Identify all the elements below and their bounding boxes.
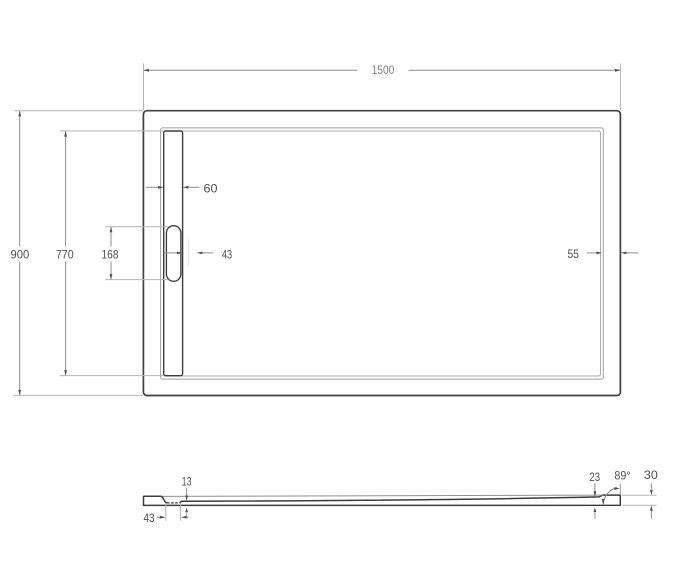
svg-text:900: 900 bbox=[11, 248, 30, 262]
svg-text:89°: 89° bbox=[614, 468, 631, 482]
svg-text:168: 168 bbox=[102, 248, 119, 262]
svg-text:30: 30 bbox=[644, 468, 658, 482]
svg-text:43: 43 bbox=[144, 511, 155, 525]
svg-text:60: 60 bbox=[204, 181, 218, 195]
svg-text:770: 770 bbox=[56, 248, 74, 262]
svg-text:43: 43 bbox=[222, 247, 232, 261]
svg-text:1500: 1500 bbox=[372, 65, 395, 77]
svg-text:13: 13 bbox=[182, 474, 192, 488]
svg-text:55: 55 bbox=[567, 247, 579, 261]
svg-text:23: 23 bbox=[589, 470, 600, 484]
